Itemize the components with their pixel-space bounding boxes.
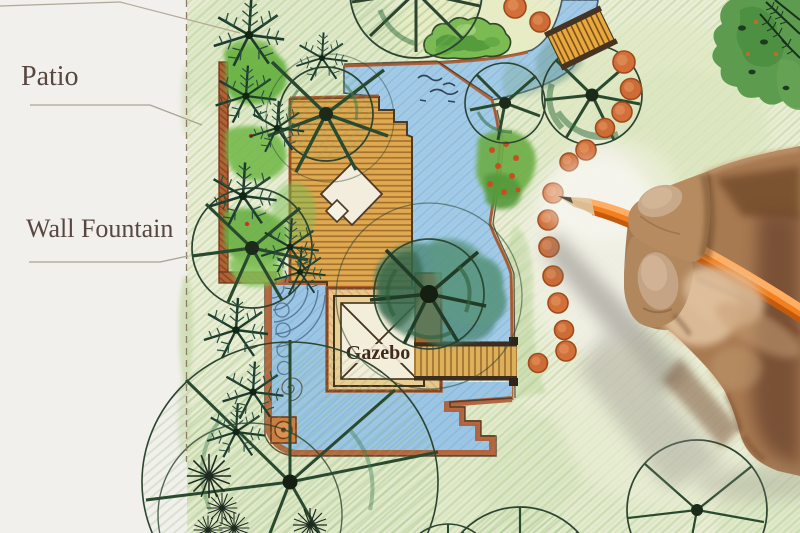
- svg-text:Patio: Patio: [21, 61, 79, 92]
- svg-text:Wall Fountain: Wall Fountain: [26, 214, 173, 243]
